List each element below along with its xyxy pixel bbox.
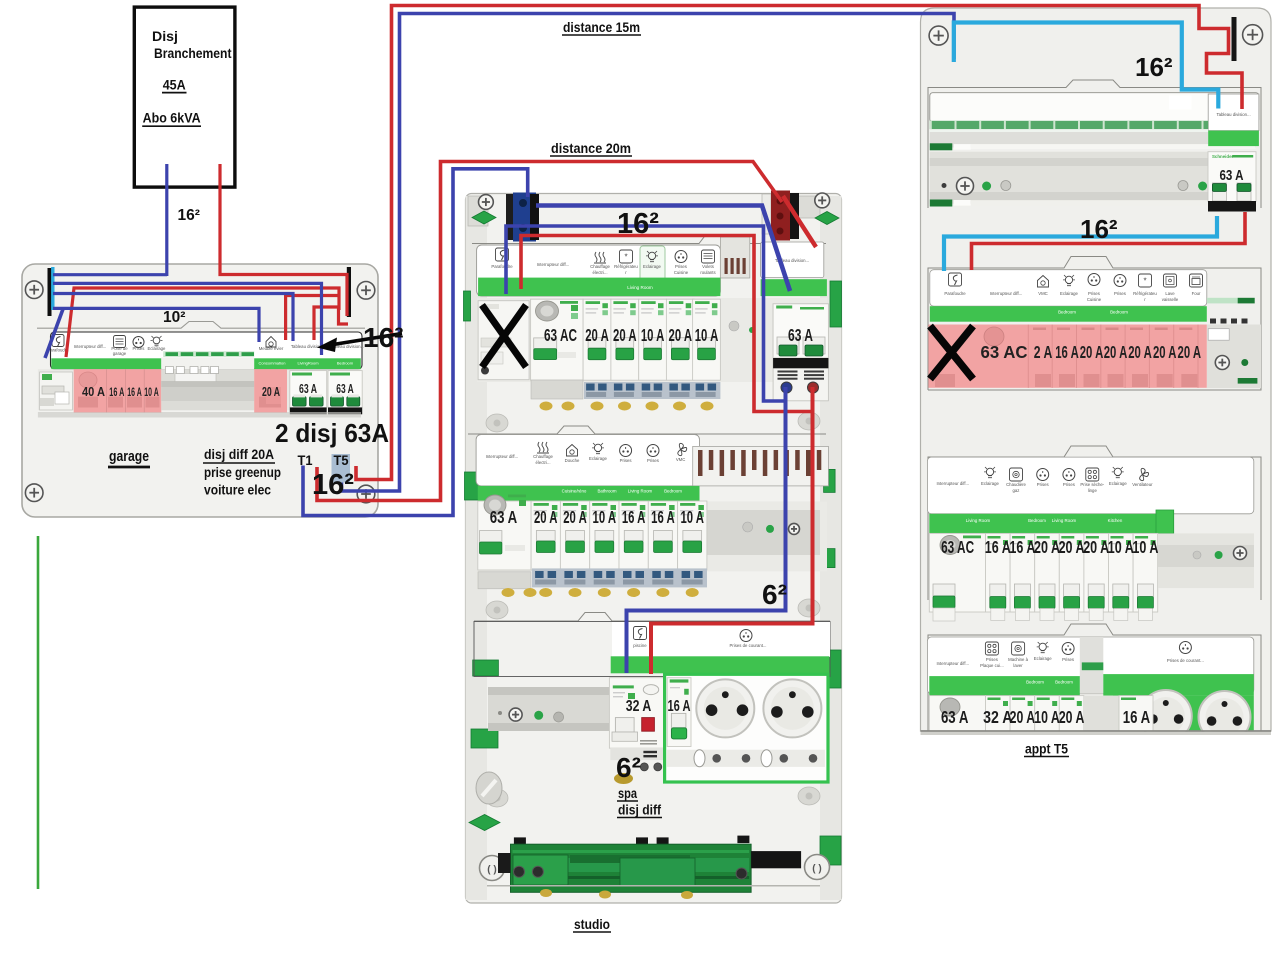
svg-text:électri...: électri... (535, 460, 550, 465)
svg-text:Interrupteur diff...: Interrupteur diff... (74, 344, 107, 349)
svg-text:10 A: 10 A (1034, 707, 1060, 727)
svg-text:Prises: Prises (675, 264, 687, 269)
svg-text:Meuble évier: Meuble évier (259, 346, 284, 351)
svg-text:Bedroom: Bedroom (1028, 518, 1046, 523)
svg-text:16²: 16² (1080, 214, 1118, 244)
svg-text:Abo 6kVA: Abo 6kVA (143, 111, 201, 126)
svg-text:Interrupteur diff...: Interrupteur diff... (936, 661, 969, 666)
svg-text:Living Room: Living Room (628, 489, 653, 494)
svg-text:63 A: 63 A (788, 325, 813, 345)
svg-text:*: * (1143, 276, 1146, 285)
svg-text:Eclairage: Eclairage (589, 456, 608, 461)
svg-text:T1: T1 (298, 453, 313, 468)
svg-text:Parafoudre: Parafoudre (491, 264, 513, 269)
svg-text:Consommation: Consommation (259, 361, 286, 366)
svg-text:électri...: électri... (592, 270, 607, 275)
svg-text:studio: studio (574, 916, 610, 932)
svg-text:disj diff 20A: disj diff 20A (204, 447, 274, 462)
svg-text:Eclairage: Eclairage (981, 481, 1000, 486)
svg-text:10 A: 10 A (641, 325, 665, 345)
svg-text:10 A: 10 A (593, 507, 617, 527)
svg-text:Bedroom: Bedroom (1026, 680, 1044, 685)
svg-text:Prises: Prises (1062, 657, 1074, 662)
svg-text:45A: 45A (163, 78, 186, 93)
svg-text:10 A: 10 A (144, 385, 159, 399)
svg-text:Interrupteur diff...: Interrupteur diff... (990, 291, 1023, 296)
svg-text:20 A: 20 A (534, 507, 558, 527)
svg-text:Ventilateur: Ventilateur (1132, 482, 1153, 487)
svg-text:16 A: 16 A (668, 698, 691, 715)
svg-text:32 A: 32 A (983, 707, 1013, 727)
svg-text:20 A: 20 A (1083, 537, 1109, 557)
svg-text:63 A: 63 A (941, 707, 969, 727)
svg-text:10 A: 10 A (1108, 537, 1134, 557)
svg-text:Réfrigérateu: Réfrigérateu (614, 264, 638, 269)
svg-text:Eclairage: Eclairage (643, 264, 662, 269)
svg-text:linge: linge (1088, 488, 1098, 493)
svg-text:16 A: 16 A (1123, 707, 1151, 727)
svg-text:Interrupteur diff...: Interrupteur diff... (486, 454, 519, 459)
svg-text:Chaudière: Chaudière (1006, 482, 1026, 487)
svg-text:Cuisine: Cuisine (1087, 297, 1102, 302)
svg-text:16 A: 16 A (109, 385, 124, 399)
svg-text:Prises: Prises (1063, 482, 1075, 487)
svg-text:Prises: Prises (986, 657, 998, 662)
svg-text:20 A: 20 A (1178, 342, 1202, 362)
svg-text:*: * (624, 252, 627, 261)
svg-text:Living Room: Living Room (627, 285, 653, 290)
svg-text:Volets: Volets (702, 264, 714, 269)
svg-text:Bedroom: Bedroom (1055, 680, 1073, 685)
svg-text:63 A: 63 A (336, 381, 354, 396)
svg-text:63 A: 63 A (490, 507, 518, 527)
svg-text:spa: spa (618, 785, 637, 801)
svg-text:20 A: 20 A (1104, 342, 1128, 362)
svg-text:Living Room: Living Room (966, 518, 991, 523)
svg-text:63 A: 63 A (1220, 168, 1244, 184)
svg-text:Réfrigérateu: Réfrigérateu (1133, 291, 1157, 296)
svg-text:Living Room: Living Room (1052, 518, 1077, 523)
svg-text:Prises: Prises (647, 458, 659, 463)
svg-text:16 A: 16 A (985, 537, 1011, 557)
svg-text:16²: 16² (363, 322, 403, 353)
svg-text:prise greenup: prise greenup (204, 465, 281, 480)
svg-text:Prises: Prises (1114, 291, 1126, 296)
svg-text:20 A: 20 A (613, 325, 637, 345)
svg-text:Eclairage: Eclairage (1109, 481, 1128, 486)
svg-text:40 A: 40 A (82, 384, 105, 399)
svg-text:16²: 16² (178, 207, 200, 224)
svg-text:Four: Four (1192, 291, 1201, 296)
svg-text:garage: garage (109, 449, 149, 465)
svg-text:Parafoudre: Parafoudre (944, 291, 966, 296)
svg-text:10 A: 10 A (680, 507, 704, 527)
svg-text:Lave: Lave (1165, 291, 1175, 296)
svg-text:63 AC: 63 AC (981, 342, 1028, 362)
svg-text:20 A: 20 A (1059, 537, 1085, 557)
svg-text:Chauffage: Chauffage (590, 264, 610, 269)
svg-text:63 AC: 63 AC (544, 325, 577, 345)
svg-text:piscine: piscine (633, 643, 647, 648)
svg-text:20 A: 20 A (1034, 537, 1060, 557)
svg-text:Bedroom: Bedroom (337, 361, 354, 366)
svg-text:Cuisine/réno: Cuisine/réno (562, 489, 587, 494)
svg-text:16²: 16² (617, 208, 659, 240)
svg-text:( ): ( ) (487, 865, 496, 876)
svg-text:Kitchen: Kitchen (1108, 518, 1123, 523)
svg-text:16 A: 16 A (651, 507, 675, 527)
svg-text:16 A: 16 A (127, 385, 142, 399)
svg-text:distance 15m: distance 15m (563, 20, 640, 35)
svg-text:Prises: Prises (133, 346, 145, 351)
svg-text:Prise sèche-: Prise sèche- (1080, 482, 1104, 487)
svg-text:Interrupteur diff...: Interrupteur diff... (936, 481, 969, 486)
svg-text:20 A: 20 A (563, 507, 587, 527)
svg-text:16²: 16² (312, 469, 354, 501)
svg-text:2 A: 2 A (1034, 342, 1053, 362)
svg-text:10²: 10² (163, 309, 185, 326)
svg-text:10 A: 10 A (695, 325, 719, 345)
svg-text:6²: 6² (762, 579, 787, 610)
svg-text:VMC: VMC (1038, 291, 1048, 296)
svg-text:20 A: 20 A (585, 325, 609, 345)
svg-text:Eclairage: Eclairage (1060, 291, 1079, 296)
svg-text:20 A: 20 A (1059, 707, 1085, 727)
svg-text:16 A: 16 A (1055, 342, 1079, 362)
svg-text:20 A: 20 A (1128, 342, 1152, 362)
svg-text:garage: garage (113, 351, 127, 356)
svg-text:Prises de courant...: Prises de courant... (1167, 658, 1204, 663)
svg-text:32 A: 32 A (626, 698, 652, 715)
svg-text:voiture elec: voiture elec (204, 483, 271, 498)
svg-text:20 A: 20 A (1010, 707, 1036, 727)
svg-text:Cuisine: Cuisine (674, 270, 689, 275)
svg-text:roulants: roulants (700, 270, 715, 275)
svg-text:Tableau division...: Tableau division... (1217, 112, 1251, 117)
svg-text:20 A: 20 A (1153, 342, 1177, 362)
svg-text:T5: T5 (334, 453, 349, 468)
svg-text:Machine à: Machine à (1008, 657, 1028, 662)
svg-text:16²: 16² (1135, 52, 1173, 82)
svg-text:VMC: VMC (676, 457, 686, 462)
svg-text:Prises: Prises (1037, 482, 1049, 487)
svg-text:20 A: 20 A (1080, 342, 1104, 362)
svg-text:appt T5: appt T5 (1025, 741, 1068, 757)
svg-text:6²: 6² (616, 752, 641, 783)
svg-text:Eclairage: Eclairage (148, 346, 167, 351)
svg-text:disj diff: disj diff (618, 802, 661, 818)
svg-text:Bedroom: Bedroom (1058, 310, 1076, 315)
svg-text:Eclairage: Eclairage (1034, 656, 1053, 661)
svg-text:Prises: Prises (620, 458, 632, 463)
svg-text:Plaque cui...: Plaque cui... (980, 663, 1004, 668)
svg-text:63 A: 63 A (299, 381, 317, 396)
svg-text:Branchement: Branchement (154, 46, 232, 61)
svg-text:20 A: 20 A (669, 325, 693, 345)
svg-text:( ): ( ) (812, 864, 821, 875)
svg-text:Bedroom: Bedroom (1110, 310, 1128, 315)
svg-text:Interrupteur diff...: Interrupteur diff... (537, 262, 570, 267)
svg-text:Chauffage: Chauffage (533, 454, 553, 459)
svg-text:distance 20m: distance 20m (551, 141, 631, 156)
svg-text:Prises: Prises (1088, 291, 1100, 296)
svg-text:2 disj 63A: 2 disj 63A (275, 418, 389, 448)
svg-text:10 A: 10 A (1132, 537, 1158, 557)
svg-text:16 A: 16 A (1009, 537, 1035, 557)
svg-text:laver: laver (1013, 663, 1023, 668)
svg-text:vaisselle: vaisselle (1162, 297, 1179, 302)
svg-text:LivingRoom: LivingRoom (297, 361, 319, 366)
svg-text:Disj: Disj (152, 29, 178, 44)
svg-text:16 A: 16 A (622, 507, 646, 527)
svg-text:Douche: Douche (565, 458, 580, 463)
svg-text:20 A: 20 A (262, 384, 280, 399)
svg-text:Bedroom: Bedroom (664, 489, 682, 494)
svg-text:Bathroom: Bathroom (597, 489, 616, 494)
svg-text:Prises de courant...: Prises de courant... (729, 643, 766, 648)
svg-text:63 AC: 63 AC (941, 537, 974, 557)
svg-text:gaz: gaz (1013, 488, 1020, 493)
svg-text:Schneider: Schneider (1212, 154, 1234, 159)
